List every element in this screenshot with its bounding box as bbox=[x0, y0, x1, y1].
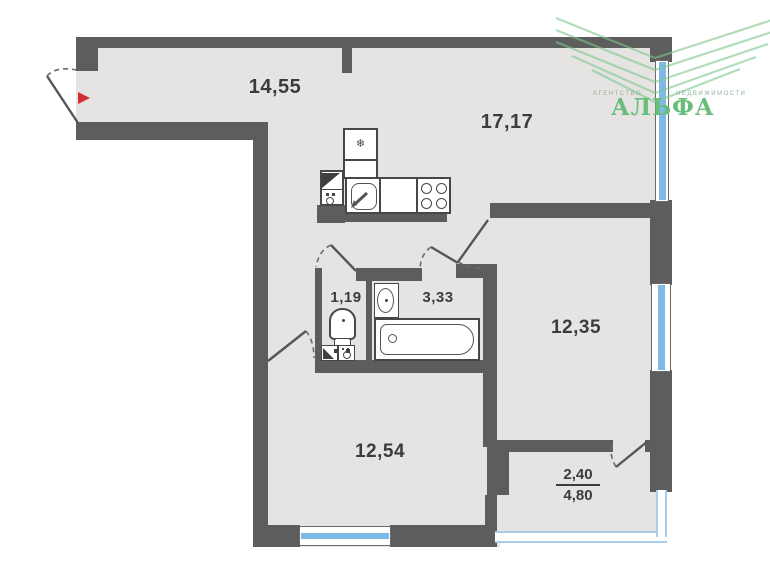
wc-washer bbox=[338, 345, 355, 361]
wall-bath-top bbox=[356, 268, 422, 281]
washbasin bbox=[374, 283, 399, 318]
label-bathroom-area: 3,33 bbox=[416, 289, 460, 306]
wall-balcony-top-right bbox=[645, 440, 656, 452]
bathtub bbox=[374, 318, 480, 361]
label-balcony-area: 2,40 4,80 bbox=[545, 466, 611, 504]
wall-hall-bottom bbox=[76, 122, 268, 140]
label-wc-area: 1,19 bbox=[324, 289, 368, 306]
window-kitchen-right bbox=[655, 60, 669, 202]
washing-machine bbox=[320, 170, 344, 206]
label-kitchen-living-area: 17,17 bbox=[472, 111, 542, 134]
label-room-right-area: 12,35 bbox=[541, 317, 611, 339]
kitchen-counter-2 bbox=[379, 177, 418, 214]
corner-sink bbox=[321, 345, 338, 361]
wall-right-lower bbox=[650, 370, 672, 492]
label-room-bottom-area: 12,54 bbox=[345, 441, 415, 463]
wall-top-left-block bbox=[76, 37, 98, 71]
wall-bath-bottom bbox=[315, 360, 497, 373]
balcony-glazing-right bbox=[656, 490, 667, 537]
wall-room-right-left bbox=[483, 276, 497, 447]
entrance-door-swing bbox=[47, 69, 76, 76]
floor-hallway bbox=[76, 48, 656, 122]
wall-room-right-top bbox=[490, 203, 656, 218]
balcony-glazing-bottom bbox=[495, 531, 667, 543]
wall-top-right-block bbox=[650, 37, 672, 62]
wall-washer-corner bbox=[317, 205, 345, 223]
kitchen-counter-1 bbox=[343, 159, 378, 179]
fridge: ❄ bbox=[343, 128, 378, 161]
wall-left-vertical bbox=[253, 122, 268, 547]
entrance-door bbox=[47, 76, 78, 123]
label-hallway-area: 14,55 bbox=[240, 76, 310, 99]
wall-balcony-thick bbox=[487, 440, 509, 495]
floor-plan-canvas: ❄ bbox=[0, 0, 770, 587]
wall-kitchen-stub bbox=[342, 48, 352, 73]
label-balcony-full: 4,80 bbox=[545, 487, 611, 504]
window-room-right bbox=[651, 283, 671, 372]
wall-bottom-left bbox=[253, 525, 300, 547]
toilet bbox=[329, 308, 356, 340]
wall-right-upper bbox=[650, 200, 672, 285]
logo-brand: АЛЬФА bbox=[611, 94, 715, 121]
wall-bottom-right bbox=[390, 525, 497, 547]
snowflake-icon: ❄ bbox=[356, 138, 365, 150]
label-balcony-reduced: 2,40 bbox=[556, 466, 599, 486]
window-room-bottom bbox=[299, 526, 391, 546]
wall-top bbox=[76, 37, 672, 48]
stove bbox=[416, 177, 451, 214]
kitchen-sink bbox=[345, 177, 381, 214]
wall-balcony-top bbox=[507, 440, 613, 452]
